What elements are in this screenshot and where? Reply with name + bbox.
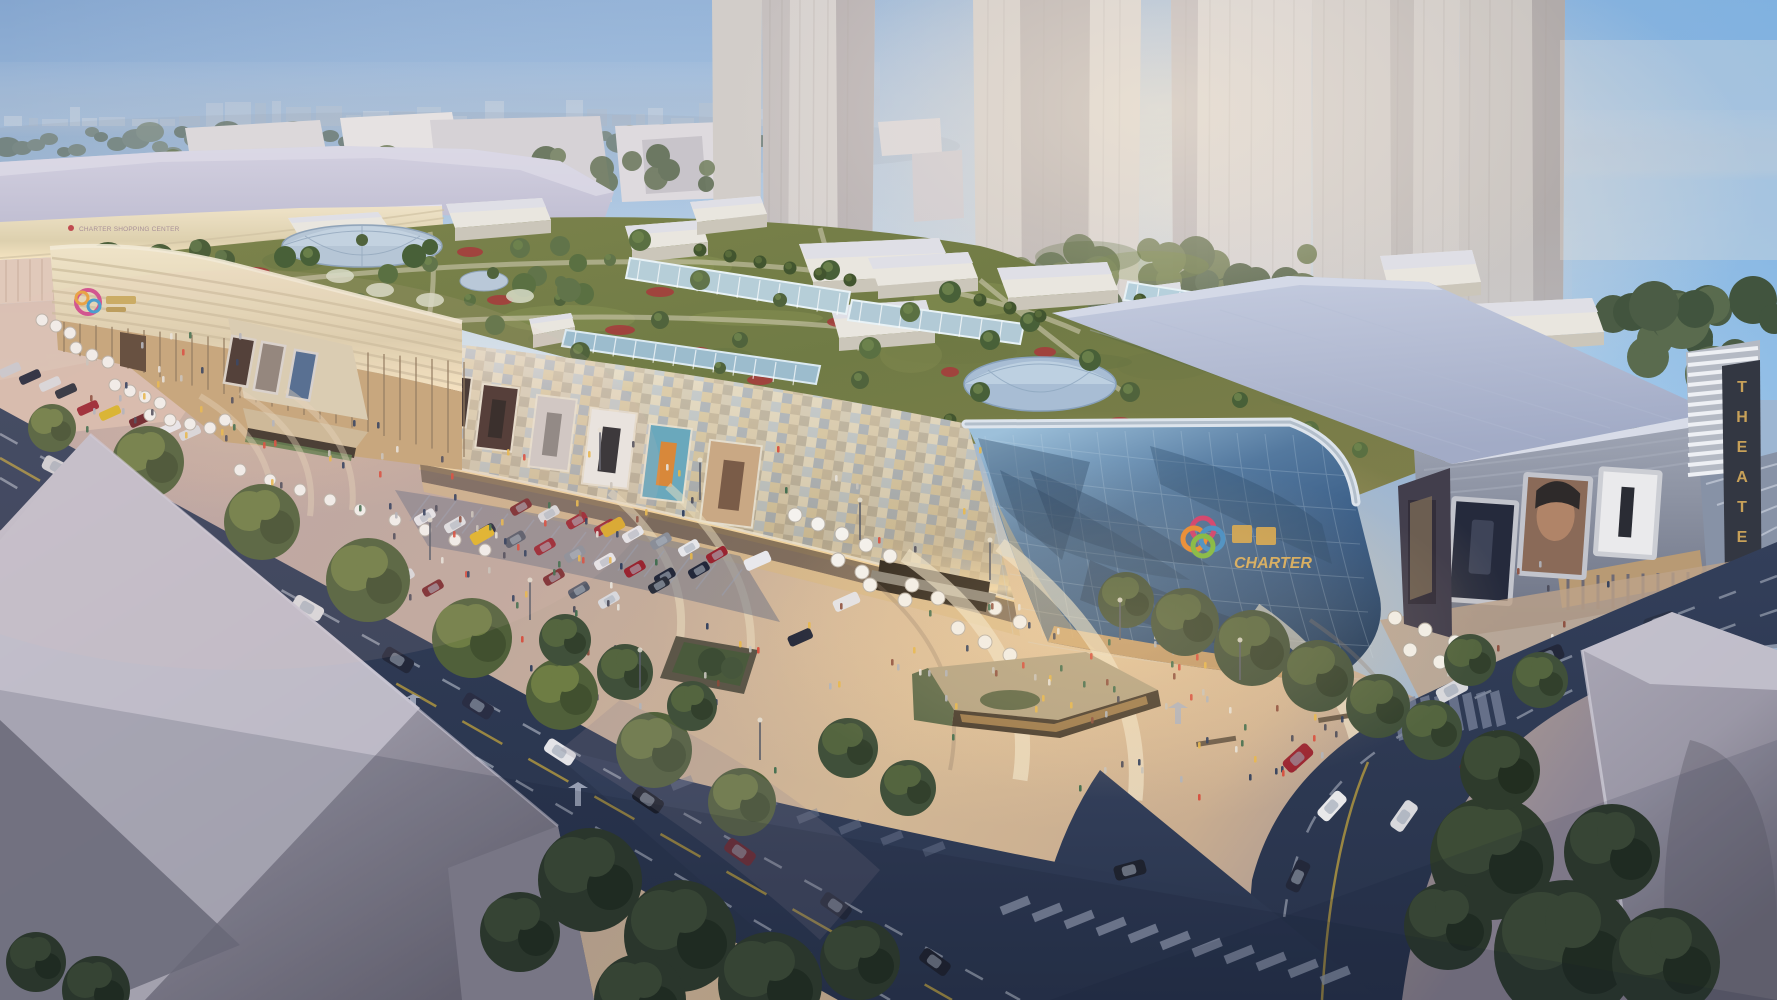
- svg-text:CHARTER SHOPPING CENTER: CHARTER SHOPPING CENTER: [79, 226, 180, 233]
